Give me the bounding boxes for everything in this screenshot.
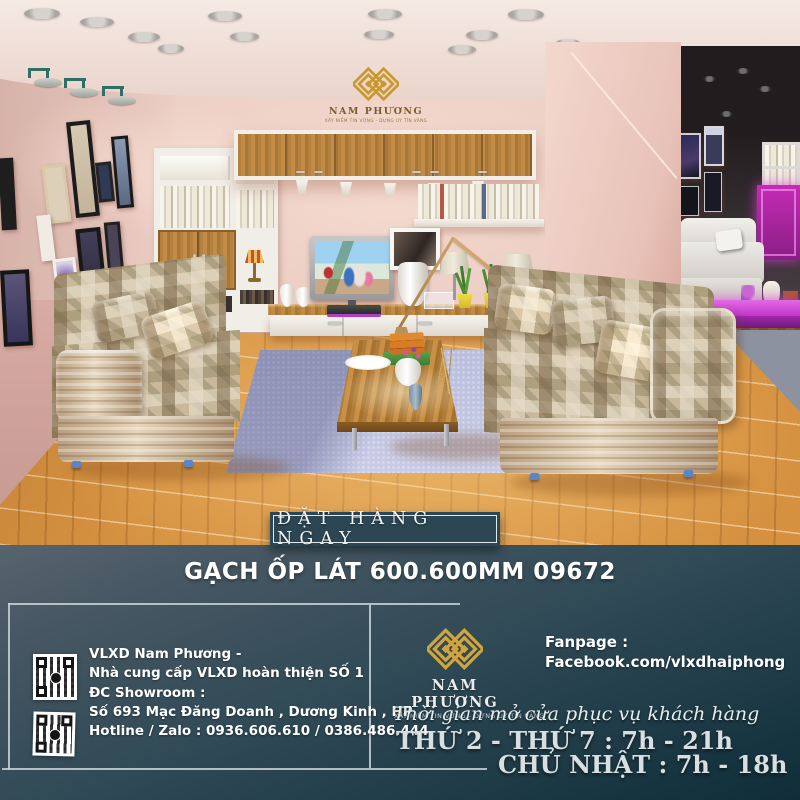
divider-line-bottom xyxy=(2,768,487,770)
living-room-scene: NAM PHƯƠNG XÂY NIỀM TIN VỮNG - DỰNG UY T… xyxy=(0,0,800,545)
contact-line: ĐC Showroom : xyxy=(89,684,429,703)
wall-cabinet xyxy=(234,130,536,180)
contact-line: Hotline / Zalo : 0936.606.610 / 0386.486… xyxy=(89,722,429,741)
product-headline: GẠCH ỐP LÁT 600.600MM 09672 xyxy=(0,559,800,585)
divider-line-top xyxy=(8,603,460,605)
table-leg xyxy=(444,424,449,446)
fanpage-url[interactable]: Facebook.com/vlxdhaiphong xyxy=(545,652,785,672)
wall-brand-name: NAM PHƯƠNG xyxy=(316,106,436,117)
picture-frame xyxy=(0,269,33,346)
hours-sunday: CHỦ NHẬT : 7h - 18h xyxy=(498,750,787,779)
picture-frame xyxy=(679,186,699,216)
divider-line-left xyxy=(8,603,10,770)
contact-line: VLXD Nam Phương - xyxy=(89,645,429,664)
picture-frame xyxy=(704,172,722,212)
ceiling-light-icon xyxy=(128,32,160,42)
brand-logo-icon xyxy=(353,66,399,102)
storage-box xyxy=(160,156,230,180)
wall-brand-tagline: XÂY NIỀM TIN VỮNG - DỰNG UY TÍN VÀNG xyxy=(316,118,436,123)
plate xyxy=(345,355,391,370)
tv xyxy=(310,236,394,314)
tv-screen xyxy=(315,241,389,294)
sofa-base xyxy=(500,418,718,474)
contact-line: Số 693 Mạc Đăng Doanh , Dương Kinh , HP xyxy=(89,703,429,722)
ceiling-light-icon xyxy=(80,17,114,27)
ceiling-light-icon xyxy=(364,30,394,39)
sofa-armrest xyxy=(56,350,142,422)
hours-title: Thời gian mở cửa phục vụ khách hàng xyxy=(393,703,759,725)
poster: NAM PHƯƠNG XÂY NIỀM TIN VỮNG - DỰNG UY T… xyxy=(0,0,800,800)
wall-shelf-board xyxy=(414,219,544,227)
wall-brand-logo: NAM PHƯƠNG XÂY NIỀM TIN VỮNG - DỰNG UY T… xyxy=(316,66,436,123)
ceiling-light-icon xyxy=(158,44,184,53)
fanpage-block: Fanpage : Facebook.com/vlxdhaiphong xyxy=(545,632,785,672)
table-leg xyxy=(352,428,357,450)
flower-vase xyxy=(393,344,429,400)
sofa-base xyxy=(58,416,234,462)
ceiling-light-icon xyxy=(24,8,60,19)
ceiling-light-icon xyxy=(448,45,476,54)
books-row xyxy=(236,190,274,228)
sofa-left xyxy=(48,264,248,470)
qr-code-icon xyxy=(32,711,75,756)
brand-logo-icon xyxy=(427,627,483,671)
spotlight-icon xyxy=(703,76,716,82)
contact-line: Nhà cung cấp VLXD hoàn thiện SỐ 1 xyxy=(89,664,429,683)
throw-pillow xyxy=(493,282,557,336)
qr-code-icon xyxy=(33,654,77,700)
order-now-label: ĐẶT HÀNG NGAY xyxy=(270,509,500,549)
ceiling-light-icon xyxy=(208,11,242,21)
sofa-right xyxy=(478,272,740,484)
picture-frame xyxy=(704,126,724,166)
ceiling-light-icon xyxy=(368,9,402,19)
spotlight-icon xyxy=(720,111,733,117)
dried-grass xyxy=(430,348,456,394)
ceiling-light-icon xyxy=(466,30,498,40)
contact-info: VLXD Nam Phương - Nhà cung cấp VLXD hoàn… xyxy=(89,645,429,741)
wall-lamp-icon xyxy=(96,84,140,114)
spotlight-icon xyxy=(758,86,772,92)
ceiling-light-icon xyxy=(230,32,259,41)
fanpage-label: Fanpage : xyxy=(545,632,785,652)
wall-shelf-books xyxy=(418,184,540,220)
potted-plant xyxy=(452,266,478,308)
ceiling-light-icon xyxy=(508,9,544,20)
footer: GẠCH ỐP LÁT 600.600MM 09672 VLXD Nam Phư… xyxy=(0,545,800,800)
books-row xyxy=(160,186,230,228)
spotlight-icon xyxy=(736,68,750,74)
sofa-armrest xyxy=(650,308,736,424)
order-now-button[interactable]: ĐẶT HÀNG NGAY xyxy=(270,512,500,546)
